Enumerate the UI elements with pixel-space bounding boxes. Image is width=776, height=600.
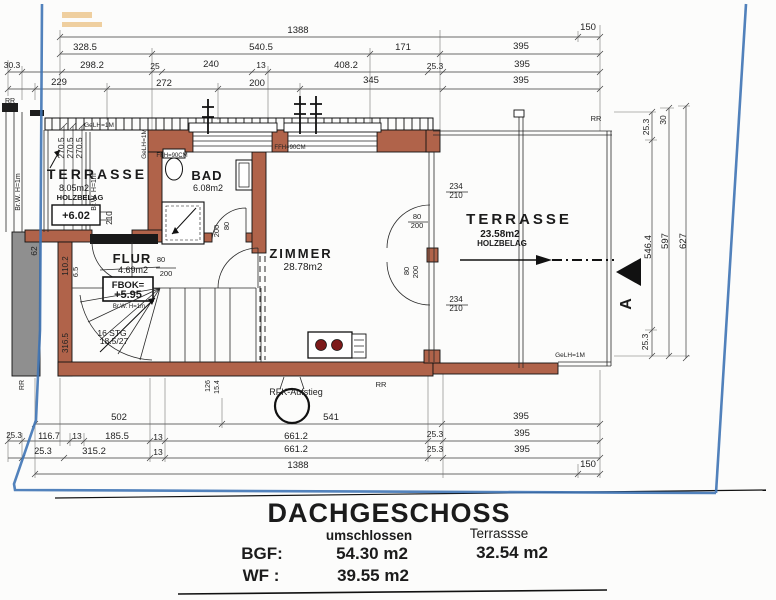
dim-label: 661.2: [284, 444, 308, 455]
dim-label: 395: [513, 75, 529, 86]
dim-label: 546.4: [643, 235, 654, 259]
dim-label: 328.5: [73, 42, 97, 53]
dim-label: 541: [323, 412, 339, 423]
dim-label: FFH=90CM: [274, 145, 305, 151]
dim-label: 25.3: [641, 118, 651, 135]
dim-label: 13: [153, 447, 163, 457]
dim-label: 345: [363, 75, 379, 86]
dim-label: RR: [19, 380, 26, 390]
bgf-enclosed-value: 54.30 m2: [336, 544, 408, 563]
dim-label: 13: [256, 60, 266, 70]
level-marker-terrasse-west: +6.02: [62, 210, 90, 222]
dim-label: GeLH=1M: [555, 352, 585, 359]
dim-label: 126: [205, 380, 212, 392]
dimension-lines-right: [614, 103, 690, 361]
stairs-text-2: 18.5/27: [100, 336, 129, 346]
kitchenette: [308, 332, 366, 358]
dim-label: 395: [513, 411, 529, 422]
shower: [162, 202, 204, 244]
dim-label: 661.2: [284, 431, 308, 442]
section-marker-letter: A: [618, 298, 635, 310]
flur-level-value: +5.95: [114, 289, 142, 301]
room-area-zimmer: 28.78m2: [284, 262, 323, 273]
dim-label: 80: [222, 222, 231, 230]
dim-label: 150: [580, 22, 596, 33]
dim-label: 1388: [287, 25, 308, 36]
door-label-bar: [90, 234, 158, 244]
dim-label: Br.W. H=1m: [91, 173, 98, 211]
dim-label: 395: [513, 41, 529, 52]
dim-label: 13: [153, 432, 163, 442]
column-header-enclosed: umschlossen: [326, 528, 412, 543]
dim-label: 80: [402, 267, 411, 275]
dim-label: 25.3: [34, 446, 52, 456]
dim-label: 110.2: [61, 256, 70, 276]
dim-label: 200: [160, 269, 173, 278]
dim-label: RR: [376, 380, 387, 389]
dim-label: GeLH=1M: [84, 122, 114, 129]
dim-label: 25.3: [640, 333, 650, 350]
dim-label: 229: [51, 77, 67, 88]
window-north-1: [189, 123, 277, 152]
dim-label: 597: [660, 233, 671, 249]
dim-label: 210: [449, 191, 463, 200]
wf-label: WF :: [243, 566, 280, 585]
radiator: [236, 160, 252, 190]
dim-label: 25.3: [427, 444, 444, 454]
dim-label: 116.7: [38, 431, 60, 441]
dim-label: 408.2: [334, 60, 358, 71]
dim-label: 150: [580, 459, 596, 470]
dim-label: 395: [514, 444, 530, 455]
dim-label: 395: [514, 59, 530, 70]
dim-label: 502: [111, 412, 127, 423]
section-cut-line: [460, 255, 614, 265]
dim-label: 315.2: [82, 446, 106, 457]
dim-label: 30: [658, 115, 668, 125]
bgf-label: BGF:: [241, 544, 283, 563]
terrace-east: [433, 110, 641, 368]
dim-label: 25.3: [427, 429, 444, 439]
floor-plan-drawing: TERRASSE 8.05m2 HOLZBELAG +6.02 BAD 6.08…: [0, 0, 776, 600]
dim-label: 210: [449, 304, 463, 313]
dim-label: 270.5: [74, 137, 84, 159]
dim-label: 185.5: [105, 431, 129, 442]
dim-label: 200: [411, 266, 420, 279]
terrace-door-1: [387, 205, 430, 248]
dim-label: 80: [157, 255, 165, 264]
dim-label: 1388: [287, 460, 308, 471]
dim-label: 62: [29, 246, 39, 256]
dim-label: 200: [212, 225, 221, 238]
dim-label: RR: [5, 98, 15, 105]
floor-plan-page: TERRASSE 8.05m2 HOLZBELAG +6.02 BAD 6.08…: [0, 0, 776, 600]
watermark-stamp: [62, 12, 102, 27]
dim-label: GeLH=1M: [141, 129, 148, 159]
dim-label: 316.5: [61, 332, 70, 353]
dim-label: 15.4: [214, 380, 221, 394]
dim-label: 210: [105, 211, 114, 225]
dim-label: 6.5: [71, 267, 80, 277]
dim-label: 25.3: [6, 431, 22, 440]
room-door-zimmer: [218, 248, 258, 288]
room-floor-terrasse-ost: HOLZBELAG: [477, 239, 527, 248]
bgf-terrace-value: 32.54 m2: [476, 543, 548, 562]
dim-label: 240: [203, 59, 219, 70]
column-header-terrace: Terrassse: [470, 526, 529, 541]
room-label-zimmer: ZIMMER: [269, 246, 332, 261]
dim-label: 200: [249, 78, 265, 89]
dim-label: 540.5: [249, 42, 273, 53]
dim-label: 272: [156, 78, 172, 89]
chimney-access: [275, 377, 309, 423]
dim-label: RR: [591, 114, 602, 123]
dim-label: 25: [150, 61, 160, 71]
dim-label: 30.3: [4, 60, 21, 70]
dim-label: FFH=90CM: [156, 153, 187, 159]
room-label-bad: BAD: [191, 168, 222, 183]
dim-label: 13: [72, 431, 82, 441]
dim-label: 627: [678, 233, 689, 249]
section-marker-triangle: [616, 258, 641, 286]
title-block: DACHGESCHOSS umschlossen Terrassse BGF: …: [241, 498, 548, 585]
dim-label: Br.W. H=1m: [15, 173, 22, 211]
dim-label: 171: [395, 42, 411, 53]
dim-label: 80: [413, 212, 421, 221]
plan-title: DACHGESCHOSS: [267, 498, 510, 528]
room-area-flur: 4.69m2: [118, 265, 148, 275]
dim-label: 234: [449, 295, 463, 304]
dim-label: 298.2: [80, 60, 104, 71]
room-area-terrasse-west: 8.05m2: [59, 183, 89, 193]
dim-label: 395: [514, 428, 530, 439]
dim-label: 200: [411, 221, 424, 230]
room-label-flur: FLUR: [113, 251, 152, 266]
dim-label: RFK-Aufstieg: [269, 387, 323, 397]
dim-label: 25.3: [427, 61, 444, 71]
room-label-terrasse-ost: TERRASSE: [466, 211, 572, 228]
dim-label: 234: [449, 182, 463, 191]
room-area-bad: 6.08m2: [193, 183, 223, 193]
wf-value: 39.55 m2: [337, 566, 409, 585]
bathroom: [162, 149, 252, 244]
dim-label: Br.W. H=1m: [113, 304, 145, 310]
